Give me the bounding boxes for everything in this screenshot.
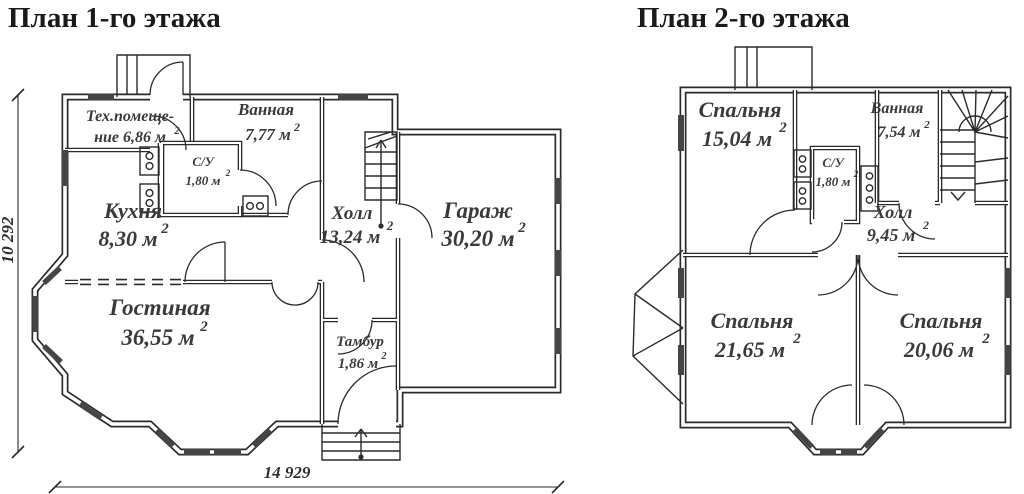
room-label-hall1-area: 13,24 м: [320, 227, 381, 248]
room-label-garage-sup: 2: [517, 220, 526, 236]
room-label-wc2-area: 1,80 м: [816, 174, 851, 189]
room-label-bath1-sup: 2: [293, 120, 300, 134]
plan1-porch: [117, 55, 190, 97]
plan2-title: План 2-го этажа: [637, 2, 850, 34]
room-label-wc2-name: С/У: [822, 155, 845, 170]
plan1-title: План 1-го этажа: [8, 2, 221, 34]
room-label-kitchen-sup: 2: [160, 221, 169, 237]
dimension-width: 14 929: [264, 463, 311, 482]
room-label-bedroom1-area: 15,04 м: [702, 126, 772, 151]
room-label-tambour-sup: 2: [381, 351, 387, 362]
room-label-bedroom1-name: Спальня: [699, 97, 782, 122]
room-label-wc1-area: 1,80 м: [186, 173, 221, 188]
room-label-bedroom2-sup: 2: [792, 331, 801, 347]
room-label-living-sup: 2: [199, 319, 208, 335]
room-label-kitchen-name: Кухня: [103, 198, 162, 223]
room-label-bath2-sup: 2: [923, 119, 930, 131]
room-label-hall2-name: Холл: [873, 202, 913, 222]
dimension-height: 10 292: [0, 216, 17, 263]
room-label-bath1-area: 7,77 м: [245, 125, 291, 144]
floor-plan-1: План 1-го этажа: [0, 2, 564, 493]
plan1-dashed-opening: [80, 280, 183, 285]
room-label-bedroom3-area: 20,06 м: [903, 337, 974, 362]
plan1-interior-walls: [65, 97, 398, 424]
room-label-bedroom3-name: Спальня: [900, 308, 983, 333]
floor-plans-page: План 1-го этажа: [0, 0, 1024, 494]
room-label-garage-area: 30,20 м: [440, 226, 514, 251]
room-label-hall2-sup: 2: [922, 218, 929, 232]
room-label-garage-name: Гараж: [442, 198, 513, 223]
room-label-hall1-sup: 2: [386, 218, 394, 233]
room-label-wc1-sup: 2: [225, 168, 231, 178]
room-label-tambour-name: Тамбур: [336, 334, 384, 350]
plan1-entrance-steps: [322, 424, 400, 460]
room-label-bath2-name: Ванная: [870, 100, 924, 117]
plan2-wall-openings: [812, 219, 844, 225]
room-label-bedroom3-sup: 2: [981, 331, 990, 347]
room-label-wc2-sup: 2: [853, 169, 859, 179]
room-label-tech-line1: Тех.помеще-: [86, 108, 174, 125]
room-label-hall2-area: 9,45 м: [867, 225, 915, 245]
room-label-tech-sup: 2: [173, 125, 180, 137]
room-label-bedroom2-area: 21,65 м: [714, 337, 785, 362]
plan2-bay-roof: [633, 250, 683, 404]
room-label-wc1-name: С/У: [192, 154, 215, 169]
plan2-staircase: [940, 90, 1008, 203]
room-label-living-area: 36,55 м: [120, 325, 194, 350]
plan2-room-labels: Спальня 15,04 м 2 Ванная 7,54 м 2 С/У 1,…: [699, 97, 991, 362]
room-label-bedroom1-sup: 2: [778, 120, 787, 136]
room-label-bedroom2-name: Спальня: [711, 308, 794, 333]
floor-plans-drawing: План 1-го этажа: [0, 0, 1024, 494]
room-label-hall1-name: Холл: [331, 203, 373, 224]
floor-plan-2: План 2-го этажа: [633, 2, 1011, 455]
room-label-bath1-name: Ванная: [237, 100, 294, 119]
room-label-living-name: Гостиная: [108, 295, 210, 320]
plan1-room-labels: Тех.помеще- ние 6,86 м 2 Ванная 7,77 м 2…: [86, 100, 526, 372]
room-label-bath2-area: 7,54 м: [878, 124, 921, 141]
plan2-chimney: [735, 47, 812, 90]
room-label-tech-line2: ние 6,86 м: [94, 129, 166, 146]
room-label-kitchen-area: 8,30 м: [98, 226, 157, 251]
room-label-tambour-area: 1,86 м: [338, 356, 378, 372]
